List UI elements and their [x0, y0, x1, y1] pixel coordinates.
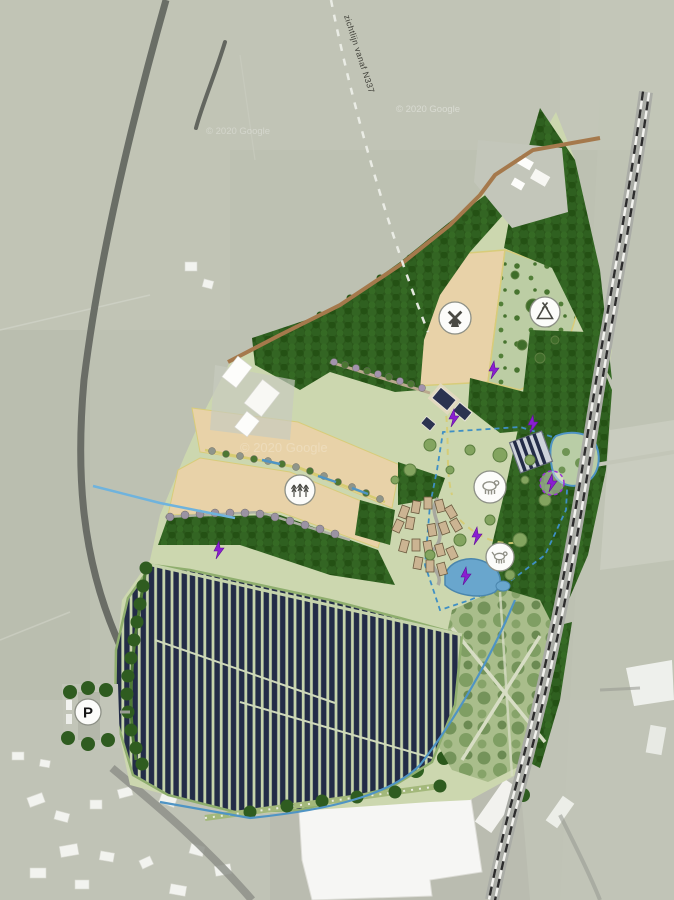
google-watermark: © 2020 Google — [396, 104, 460, 115]
map-canvas: P zichtlijn vanaf N337 © 2020 Google © 2… — [0, 0, 674, 900]
tent-marker[interactable] — [530, 297, 560, 327]
windmill-marker[interactable] — [439, 302, 471, 334]
parking-marker[interactable]: P — [75, 699, 101, 725]
trees-icon — [292, 484, 309, 497]
site-plan-map: P zichtlijn vanaf N337 © 2020 Google © 2… — [0, 0, 674, 900]
livestock-marker[interactable] — [474, 471, 506, 503]
dog-meadow-marker[interactable] — [486, 543, 514, 571]
parking-icon: P — [83, 705, 93, 722]
google-watermark: © 2020 Google — [206, 126, 270, 137]
orchard-marker[interactable] — [285, 475, 315, 505]
google-watermark: © 2020 Google — [240, 440, 328, 455]
